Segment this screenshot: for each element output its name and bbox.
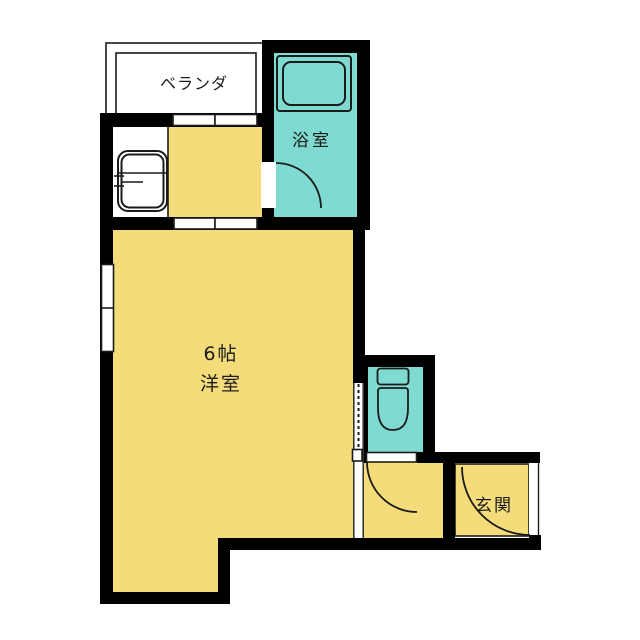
floor-plan-canvas: ベランダ 浴室 6帖 洋室 玄関 (0, 0, 640, 640)
main-room-window (102, 265, 114, 352)
room-toilet (368, 367, 423, 452)
accordion-door (353, 383, 365, 538)
main-room-type-label: 洋室 (200, 373, 242, 395)
room-hallway (364, 462, 443, 538)
toilet-door-leaf (367, 453, 417, 463)
main-room-size-label: 6帖 (203, 343, 238, 365)
floor-plan: ベランダ 浴室 6帖 洋室 玄関 (0, 0, 640, 640)
entrance-label: 玄関 (475, 496, 513, 516)
entrance-door-gap (529, 463, 539, 535)
kitchen-opening (174, 218, 257, 229)
balcony-label: ベランダ (160, 74, 228, 93)
accordion-door-handle (353, 450, 363, 462)
bathroom-door-gap (261, 162, 276, 208)
balcony-window (173, 115, 257, 126)
bathroom-label: 浴室 (292, 131, 332, 151)
room-main (113, 230, 353, 592)
